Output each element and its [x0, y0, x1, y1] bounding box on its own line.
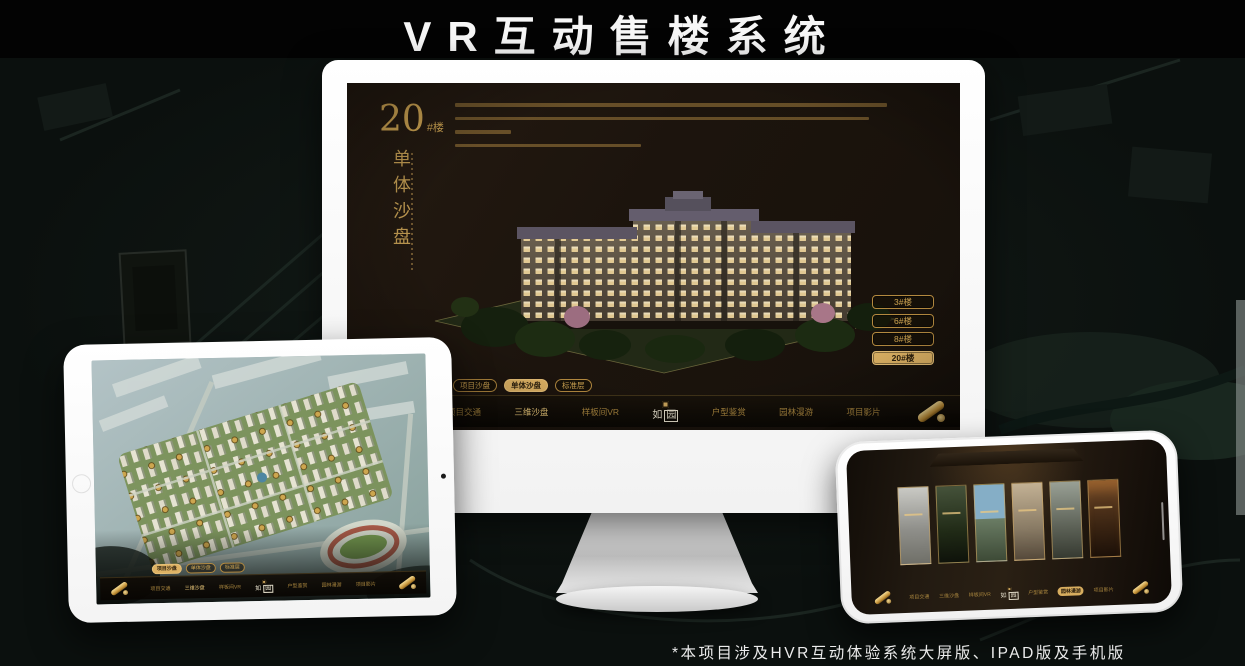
unit-suffix: #楼: [427, 122, 444, 134]
seal-icon: [262, 579, 266, 583]
monitor-brand-logo: 如园: [652, 401, 678, 422]
phone-nav-item-3d-sandbox[interactable]: 三维沙盘: [939, 591, 959, 599]
scroll-icon[interactable]: [109, 580, 130, 598]
scroll-icon[interactable]: [1130, 579, 1151, 597]
phone-nav-item-traffic[interactable]: 项目交通: [909, 593, 929, 601]
tablet-nav-item-traffic[interactable]: 项目交通: [150, 584, 170, 591]
monitor-base: [556, 586, 758, 612]
building-3d-render: [425, 167, 903, 379]
gallery-panel[interactable]: [1049, 480, 1083, 559]
phone-nav-item-project-video[interactable]: 项目影片: [1094, 586, 1114, 594]
monitor-nav-item-garden-tour[interactable]: 园林漫游: [779, 406, 813, 418]
phone-device: 项目交通 三维沙盘 样板间VR 如园 户型鉴赏 园林漫游 项目影片: [835, 430, 1184, 625]
phone-bottom-nav: 项目交通 三维沙盘 样板间VR 如园 户型鉴赏 园林漫游 项目影片: [865, 577, 1158, 608]
tablet-nav-item-project-video[interactable]: 项目影片: [356, 580, 376, 587]
unit-title-vertical: 单体沙盘: [387, 149, 413, 253]
floor-button-6[interactable]: 6#楼: [872, 314, 934, 328]
promo-canvas: VR互动售楼系统 20#楼 单体沙盘: [0, 0, 1245, 666]
gallery-panel[interactable]: [1011, 482, 1045, 561]
monitor-nav-item-floorplan[interactable]: 户型鉴赏: [712, 406, 746, 418]
monitor-nav-item-model-room-vr[interactable]: 样板间VR: [582, 406, 619, 418]
tab-project-sandbox[interactable]: 项目沙盘: [453, 379, 497, 392]
tablet-nav-item-3d-sandbox[interactable]: 三维沙盘: [185, 584, 205, 591]
monitor-nav-item-3d-sandbox[interactable]: 三维沙盘: [514, 406, 548, 418]
gallery-panel[interactable]: [973, 483, 1007, 562]
background-photo-frame: [120, 250, 191, 345]
floor-button-group: 3#楼 6#楼 8#楼 20#楼: [872, 295, 934, 369]
phone-nav-item-model-room-vr[interactable]: 样板间VR: [969, 590, 991, 598]
scroll-icon[interactable]: [396, 574, 417, 592]
phone-screen: 项目交通 三维沙盘 样板间VR 如园 户型鉴赏 园林漫游 项目影片: [846, 439, 1172, 615]
tab-standard-floor[interactable]: 标准层: [220, 562, 245, 573]
gallery-panel[interactable]: [1087, 479, 1121, 558]
monitor-sub-tabs: 项目沙盘 单体沙盘 标准层: [453, 379, 592, 392]
gallery-panel[interactable]: [897, 486, 931, 565]
floor-button-20[interactable]: 20#楼: [872, 351, 934, 365]
image-gallery: [847, 477, 1170, 567]
home-button[interactable]: [72, 474, 91, 493]
footnote: *本项目涉及HVR互动体验系统大屏版、IPAD版及手机版: [672, 641, 1126, 663]
tablet-nav-item-floorplan[interactable]: 户型鉴赏: [287, 582, 307, 589]
floor-button-8[interactable]: 8#楼: [872, 332, 934, 346]
tab-standard-floor[interactable]: 标准层: [555, 379, 592, 392]
camera-icon: [441, 474, 446, 479]
floor-button-3[interactable]: 3#楼: [872, 295, 934, 309]
tablet-nav-item-garden-tour[interactable]: 园林漫游: [322, 581, 342, 588]
background-edge-strip: [1236, 300, 1245, 515]
gallery-panel[interactable]: [935, 485, 969, 564]
tab-single-sandbox[interactable]: 单体沙盘: [504, 379, 548, 392]
tablet-brand-logo: 如园: [255, 579, 273, 592]
phone-brand-logo: 如园: [1000, 586, 1019, 600]
seal-icon: [662, 401, 669, 408]
unit-heading: 20#楼: [379, 99, 444, 140]
description-paragraph: [455, 103, 905, 157]
tablet-device: 项目沙盘 单体沙盘 标准层 项目交通 三维沙盘 样板间VR 如园 户型鉴赏 园林…: [63, 337, 457, 623]
tab-single-sandbox[interactable]: 单体沙盘: [186, 563, 216, 574]
tablet-nav-item-model-room-vr[interactable]: 样板间VR: [219, 583, 241, 590]
monitor-nav-item-project-video[interactable]: 项目影片: [847, 406, 881, 418]
phone-nav-item-garden-tour[interactable]: 园林漫游: [1058, 586, 1084, 596]
scroll-icon[interactable]: [872, 589, 893, 607]
seal-icon: [1007, 586, 1011, 590]
tablet-bottom-bars: 项目沙盘 单体沙盘 标准层 项目交通 三维沙盘 样板间VR 如园 户型鉴赏 园林…: [100, 559, 427, 601]
tab-project-sandbox[interactable]: 项目沙盘: [152, 564, 182, 575]
scroll-icon[interactable]: [914, 398, 948, 426]
unit-title-english-decoration: [411, 153, 413, 273]
tablet-screen: 项目沙盘 单体沙盘 标准层 项目交通 三维沙盘 样板间VR 如园 户型鉴赏 园林…: [91, 354, 430, 605]
page-title: VR互动售楼系统: [0, 3, 1245, 64]
phone-nav-item-floorplan[interactable]: 户型鉴赏: [1028, 588, 1048, 596]
unit-number: 20: [379, 99, 425, 140]
